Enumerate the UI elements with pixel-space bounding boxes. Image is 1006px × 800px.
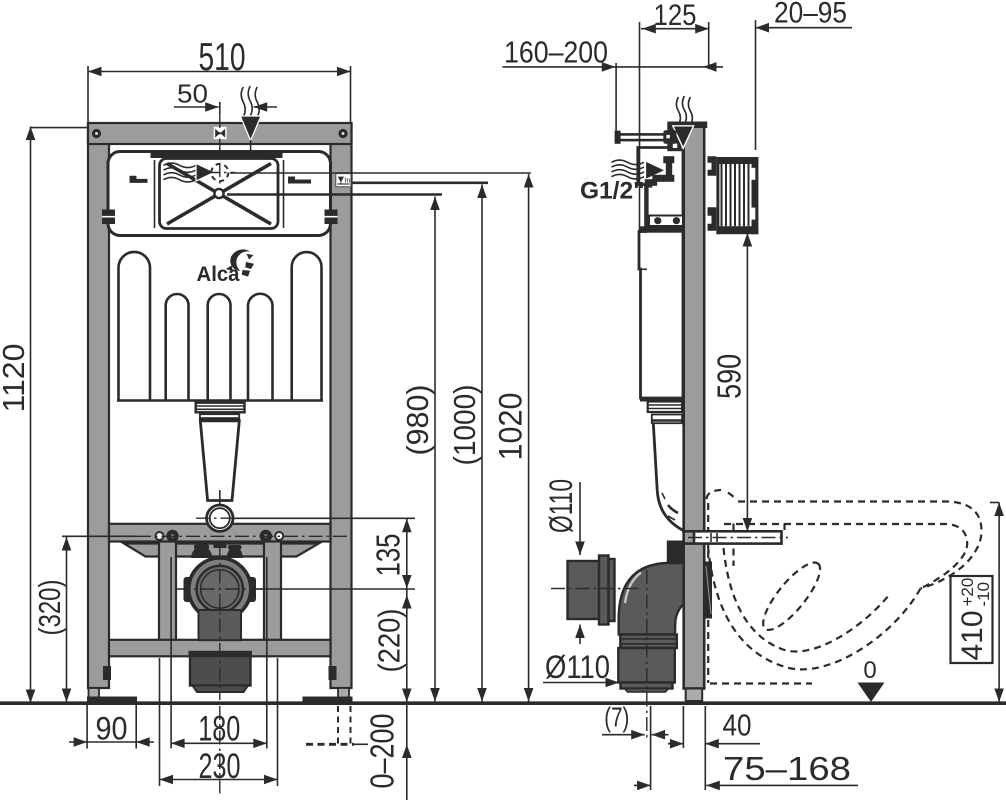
svg-text:510: 510 xyxy=(199,36,246,79)
svg-text:0: 0 xyxy=(863,657,876,684)
svg-text:40: 40 xyxy=(723,708,752,743)
svg-text:1020: 1020 xyxy=(493,393,529,461)
svg-text:160–200: 160–200 xyxy=(504,35,608,70)
svg-text:(320): (320) xyxy=(32,580,67,636)
svg-text:125: 125 xyxy=(654,0,697,32)
svg-text:(1000): (1000) xyxy=(447,385,482,466)
svg-text:230: 230 xyxy=(199,747,241,786)
svg-text:G1/2": G1/2" xyxy=(580,178,645,205)
svg-text:590: 590 xyxy=(711,354,748,399)
svg-text:-10: -10 xyxy=(974,582,993,607)
svg-text:Ø110: Ø110 xyxy=(545,649,610,685)
svg-text:1120: 1120 xyxy=(0,344,31,413)
svg-text:90: 90 xyxy=(96,710,128,746)
svg-text:180: 180 xyxy=(198,710,240,749)
svg-text:(7): (7) xyxy=(604,702,629,733)
svg-text:(980): (980) xyxy=(400,385,435,456)
svg-text:In: In xyxy=(344,176,350,185)
svg-text:20–95: 20–95 xyxy=(774,0,847,30)
svg-text:135: 135 xyxy=(370,534,407,577)
svg-text:0–200: 0–200 xyxy=(364,714,401,789)
svg-text:50: 50 xyxy=(177,79,208,109)
svg-text:(220): (220) xyxy=(372,609,407,673)
svg-text:410: 410 xyxy=(956,610,989,660)
svg-text:75–168: 75–168 xyxy=(723,750,851,787)
svg-text:Ø110: Ø110 xyxy=(543,479,579,533)
